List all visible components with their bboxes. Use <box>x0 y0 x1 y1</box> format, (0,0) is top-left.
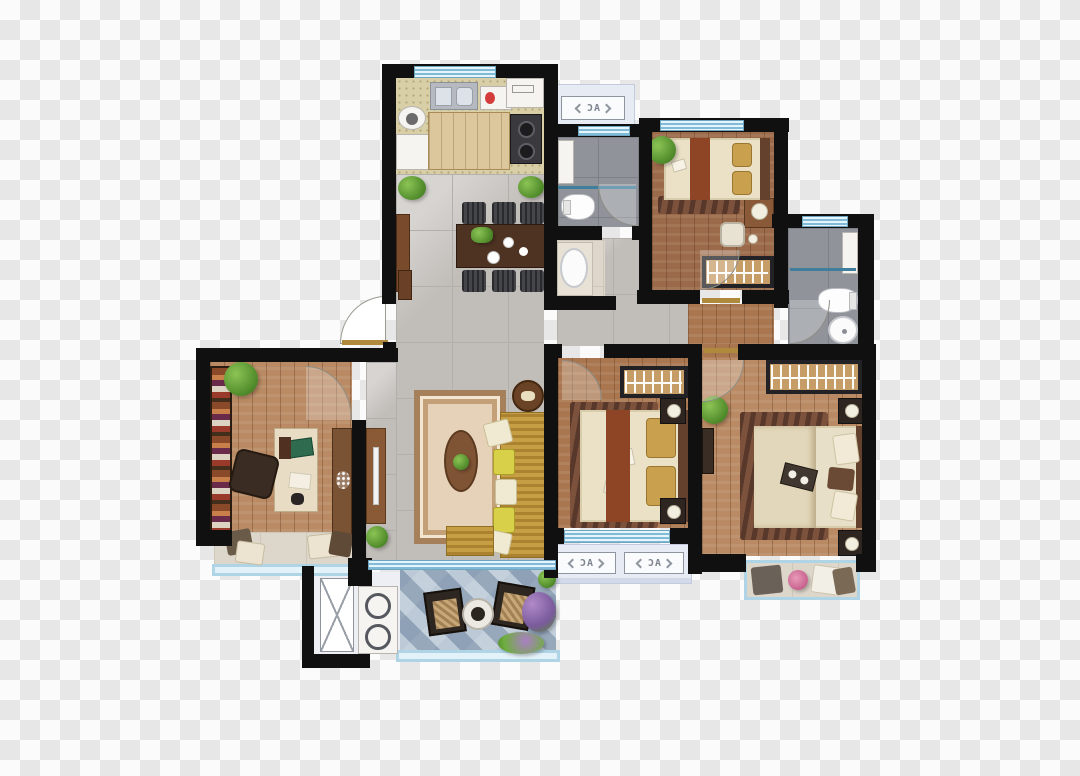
bedroom3-window <box>564 530 670 543</box>
bathroom1-window <box>578 126 630 136</box>
door-sill <box>704 348 738 353</box>
wall <box>196 530 232 546</box>
master-bed <box>754 426 866 528</box>
ac-label: AC <box>561 96 625 120</box>
side-table <box>512 380 544 412</box>
plant <box>518 176 544 198</box>
tv <box>373 447 379 505</box>
wall <box>742 290 789 304</box>
cup <box>788 469 798 479</box>
sofa-pillow <box>495 479 517 505</box>
bed-pillow <box>830 490 858 522</box>
toilet <box>561 194 595 220</box>
wall <box>604 344 702 358</box>
dining-chair <box>462 270 486 292</box>
dining-chair <box>462 202 486 224</box>
wall <box>196 348 398 362</box>
tray <box>521 391 535 401</box>
balcony-railing <box>396 650 560 662</box>
bathroom2-window <box>802 216 848 227</box>
fridge-handle <box>512 85 534 93</box>
kitchen-island <box>428 112 510 170</box>
vanity-dresser <box>744 198 774 228</box>
plant <box>366 526 388 548</box>
study-cabinet <box>332 428 352 536</box>
balcony-chair <box>423 588 467 637</box>
desk <box>274 428 318 512</box>
bed-pillow <box>646 418 676 458</box>
tv-console <box>366 428 386 524</box>
washer-dryer <box>358 586 398 654</box>
hallway-floor <box>688 304 774 346</box>
study-bay-window <box>212 564 358 576</box>
toilet-tank <box>849 292 857 310</box>
dining-table <box>456 224 546 268</box>
door-sill <box>702 298 740 303</box>
wall <box>302 566 314 668</box>
shoe-cabinet <box>398 270 412 300</box>
perfume-tray <box>748 234 758 244</box>
dining-chair <box>520 270 544 292</box>
flower-bush <box>498 632 544 654</box>
table-flowers <box>471 227 493 243</box>
bay-cushion <box>751 565 784 596</box>
sofa-pillow <box>482 418 513 448</box>
floor-plan: AC AC AC <box>0 0 1080 776</box>
cooking-pot <box>398 106 426 130</box>
plate <box>503 237 514 248</box>
bath1-vanity <box>558 140 574 184</box>
sink-basin <box>456 87 473 106</box>
kettle <box>485 92 495 104</box>
book <box>671 158 687 172</box>
wall <box>862 344 876 572</box>
entry-door-leaf <box>342 340 388 345</box>
ac-label-text: AC <box>579 558 593 569</box>
ac-label: AC <box>624 552 684 574</box>
flower-vase <box>336 471 350 489</box>
wall <box>670 528 702 544</box>
nightstand <box>660 398 686 424</box>
lamp <box>845 537 859 551</box>
round-basin <box>828 316 858 344</box>
bed-pillow <box>732 143 752 167</box>
vanity-mirror <box>751 203 768 220</box>
dining-chair <box>492 202 516 224</box>
desk-lamp <box>291 493 304 505</box>
ac-label: AC <box>556 552 616 574</box>
nightstand <box>838 398 864 424</box>
bay-cushion <box>328 530 354 557</box>
wall <box>302 654 370 668</box>
plant <box>224 362 258 396</box>
bedroom2-bed <box>664 138 770 200</box>
wall <box>738 344 876 360</box>
dining-chair <box>492 270 516 292</box>
wall <box>196 348 210 546</box>
entry-door-arc <box>340 296 386 344</box>
wall <box>688 554 746 572</box>
wall <box>352 420 366 576</box>
bed-pillow <box>832 432 860 465</box>
bed-runner <box>606 410 630 522</box>
sink-basin <box>435 87 452 106</box>
toilet-tank <box>563 200 571 215</box>
stove <box>510 114 542 164</box>
book <box>279 437 291 459</box>
washer-door <box>365 593 391 619</box>
pot-lid <box>406 113 418 125</box>
ottoman <box>446 526 494 556</box>
plant <box>398 176 426 200</box>
kitchen-cabinet-left <box>396 134 430 170</box>
plate <box>487 251 500 264</box>
lamp <box>667 505 681 519</box>
sofa-pillow <box>493 449 515 475</box>
wall <box>639 124 652 304</box>
flower-bush <box>522 592 556 632</box>
wall <box>858 214 874 354</box>
utility-cabinet <box>320 578 354 652</box>
headboard <box>760 138 770 200</box>
chair-seat <box>432 598 460 629</box>
wash-basin <box>560 248 588 288</box>
dryer-door <box>365 624 391 650</box>
wall <box>632 226 652 240</box>
papers <box>288 472 312 490</box>
sofa-pillow <box>493 507 515 533</box>
kitchen-window <box>414 66 496 78</box>
bed-pillow <box>732 171 752 195</box>
bay-cushion <box>832 566 856 595</box>
wall <box>544 64 558 240</box>
nightstand <box>838 530 864 556</box>
bed-pillow <box>827 467 855 492</box>
cup <box>799 476 809 486</box>
wall <box>382 64 396 304</box>
flower-pot <box>788 570 808 590</box>
plant <box>648 136 676 164</box>
bed-runner <box>690 138 710 200</box>
shower-glass <box>790 268 856 271</box>
wall <box>544 528 564 544</box>
master-wardrobe <box>766 360 862 394</box>
dining-chair <box>520 202 544 224</box>
balcony-table <box>462 598 494 630</box>
burner <box>518 121 535 138</box>
fridge <box>506 78 544 108</box>
burner <box>518 143 535 160</box>
table-plant <box>453 454 469 470</box>
wall <box>637 290 700 304</box>
wall <box>544 296 616 310</box>
master-tv-console <box>702 428 714 474</box>
table-top-decor <box>471 607 485 621</box>
plate <box>519 247 528 256</box>
vanity-stool <box>720 222 745 247</box>
ac-label-text: AC <box>586 103 600 114</box>
bay-cushion <box>235 540 266 566</box>
lamp <box>667 404 681 418</box>
kitchen-sink <box>430 82 478 110</box>
bedroom2-window <box>660 120 744 131</box>
faucet-dot <box>842 329 847 334</box>
nightstand <box>660 498 686 524</box>
bedroom3-wardrobe <box>620 366 688 398</box>
lamp <box>845 404 859 418</box>
balcony-sliding-door <box>368 560 556 570</box>
ac-label-text: AC <box>647 558 661 569</box>
